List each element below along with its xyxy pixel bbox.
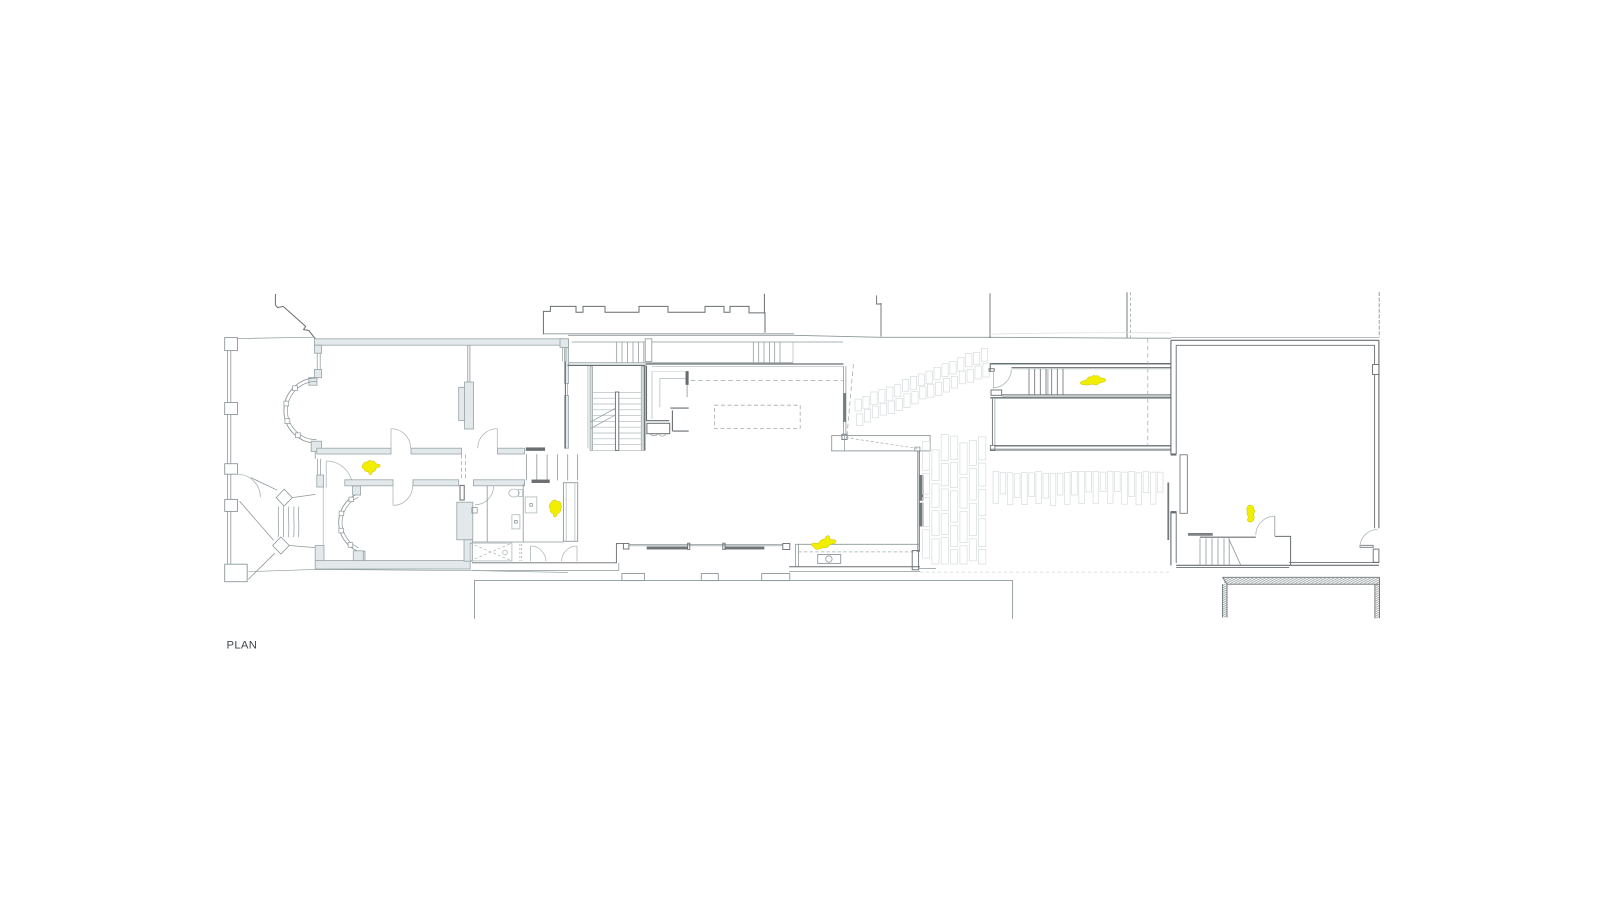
svg-text:PLAN: PLAN <box>227 640 258 652</box>
